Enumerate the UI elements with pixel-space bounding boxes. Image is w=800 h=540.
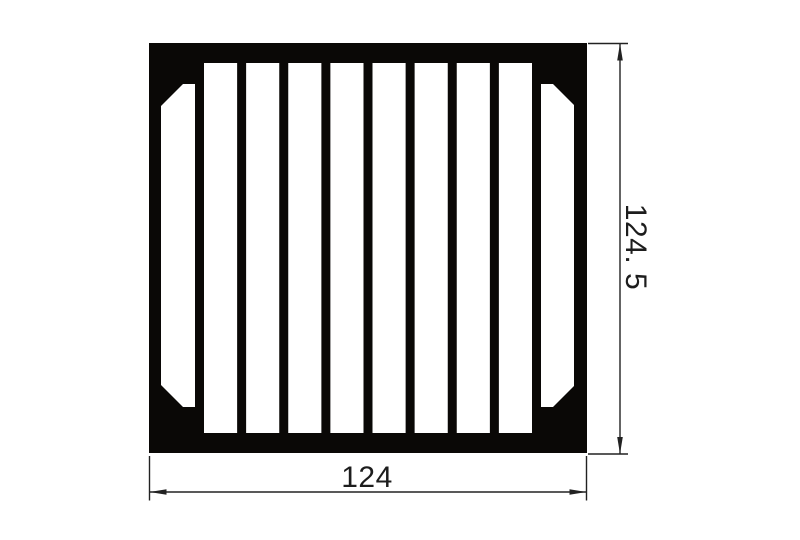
arrow-left-icon: [150, 489, 167, 495]
width-dimension-value: 124: [341, 461, 393, 494]
fin-slot: [415, 63, 448, 433]
height-dimension-value: 124. 5: [619, 204, 652, 290]
fin-slot: [499, 63, 532, 433]
profile-drawing: 124 124. 5: [0, 0, 800, 540]
fin-slot: [373, 63, 406, 433]
fin-slot: [288, 63, 321, 433]
heatsink-profile: [149, 43, 587, 453]
arrow-down-icon: [617, 437, 623, 454]
arrow-right-icon: [570, 489, 587, 495]
fin-slot: [204, 63, 237, 433]
width-dimension: 124: [150, 456, 587, 501]
height-dimension: 124. 5: [588, 44, 652, 455]
drawing-canvas: 124 124. 5: [0, 0, 800, 540]
arrow-up-icon: [617, 44, 623, 61]
fin-slot: [330, 63, 363, 433]
corner-slot-right: [541, 84, 574, 407]
fin-slot: [457, 63, 490, 433]
fin-slot: [246, 63, 279, 433]
corner-slot-left: [161, 84, 195, 407]
